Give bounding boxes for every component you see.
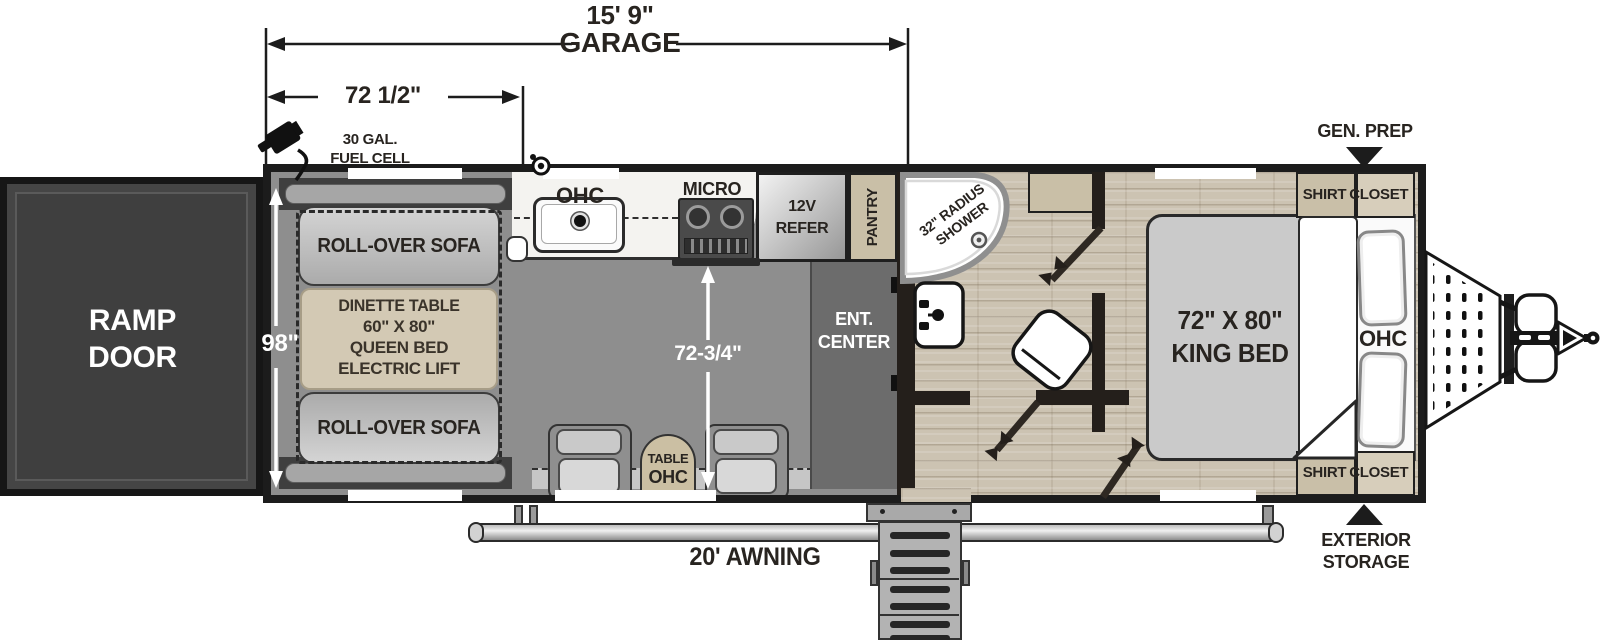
roll-over-sofa-bottom-label: ROLL-OVER SOFA	[306, 418, 492, 440]
bath-bedroom-wall-upper	[1092, 172, 1105, 229]
garage-length-value: 15' 9"	[540, 1, 700, 29]
rock-guard-vents	[1433, 263, 1493, 417]
hitch-triangle	[1558, 322, 1586, 354]
shirt-closet-top-word2: CLOSET	[1349, 186, 1408, 203]
exterior-storage-line2: STORAGE	[1316, 551, 1416, 573]
rock-guard	[1426, 252, 1500, 428]
shirt-closet-top-word1: SHIRT	[1303, 186, 1347, 203]
awning-label: 20' AWNING	[666, 544, 845, 571]
king-bed-label-line1: 72" X 80"	[1155, 304, 1305, 337]
shirt-closet-bottom-word2: CLOSET	[1349, 464, 1408, 481]
roll-over-sofa-top-label: ROLL-OVER SOFA	[306, 236, 492, 258]
king-bed-label-line2: KING BED	[1155, 337, 1305, 370]
propane-tank	[1516, 295, 1556, 335]
awning-cap-left	[468, 522, 484, 543]
table-ohc-label: OHC	[640, 468, 696, 487]
corridor-south-wall	[903, 391, 970, 405]
ramp-door-label-line2: DOOR	[20, 339, 245, 376]
refer-label: 12V REFER	[756, 196, 848, 240]
bath-south-wall	[1036, 390, 1129, 405]
fuel-cell-label: 30 GAL. FUEL CELL	[324, 130, 416, 168]
window-bedroom-bottom	[1160, 490, 1256, 501]
fuel-cell-line1: 30 GAL.	[324, 130, 416, 149]
front-hitch-assembly	[1426, 252, 1600, 428]
hitch-coupler-icon	[1587, 332, 1600, 345]
exterior-storage-line1: EXTERIOR	[1316, 529, 1416, 551]
garage-length-word: GARAGE	[535, 28, 705, 58]
body-width-value: 98"	[254, 331, 306, 357]
bedroom-ohc-label: OHC	[1352, 327, 1414, 351]
front-width-value: 72 1/2"	[318, 83, 448, 109]
micro-label: MICRO	[678, 180, 746, 199]
ramp-door-label: RAMP DOOR	[20, 302, 245, 376]
a-frame-bar	[1500, 345, 1568, 377]
dinette-label-line2: 60" X 80"	[300, 316, 498, 337]
ent-center-label: ENT. CENTER	[810, 308, 898, 354]
exterior-storage-label: EXTERIOR STORAGE	[1316, 529, 1416, 573]
shirt-closet-bottom-word1: SHIRT	[1303, 464, 1347, 481]
gen-prep-label: GEN. PREP	[1310, 122, 1420, 141]
propane-tank	[1516, 341, 1556, 381]
dinette-label-line3: QUEEN BED	[300, 337, 498, 358]
dinette-label-line1: DINETTE TABLE	[306, 295, 492, 316]
ent-center-label-line1: ENT.	[810, 308, 898, 331]
aisle-width-value: 72-3/4"	[668, 343, 748, 366]
rv-floorplan: RAMP DOOR ROLL-OVER SOFA DINETTE TABLE 6…	[0, 0, 1600, 640]
shirt-closet-top-label: SHIRTCLOSET	[1296, 187, 1415, 203]
tank-tray	[1510, 331, 1560, 345]
window-garage-bottom	[348, 490, 462, 501]
a-frame-bar	[1500, 302, 1568, 332]
ent-center-label-line2: CENTER	[810, 331, 898, 354]
refer-label-line1: 12V	[756, 196, 848, 218]
bath-bedroom-wall-lower	[1092, 293, 1105, 432]
awning-tube	[470, 523, 1284, 542]
window-kitchen-bottom	[555, 490, 716, 501]
refer-label-line2: REFER	[756, 218, 848, 240]
king-bed-label: 72" X 80" KING BED	[1150, 304, 1310, 370]
garage-bath-wall	[897, 172, 915, 495]
window-garage-top	[348, 168, 462, 179]
steps-side-tab-left	[870, 560, 878, 586]
entry-steps-platform	[866, 503, 972, 522]
entry-steps	[878, 521, 962, 640]
ramp-door-label-line1: RAMP	[20, 302, 245, 339]
dinette-label: DINETTE TABLE 60" X 80" QUEEN BED ELECTR…	[300, 295, 498, 379]
steps-side-tab-right	[962, 560, 970, 586]
window-kitchen-top	[543, 168, 619, 179]
entry-door-opening	[901, 488, 971, 502]
fuel-cell-line2: FUEL CELL	[324, 149, 416, 168]
exterior-storage-arrow-icon	[1346, 504, 1383, 525]
window-bedroom-top	[1155, 168, 1256, 179]
shirt-closet-bottom-label: SHIRTCLOSET	[1296, 465, 1415, 481]
table-label: TABLE	[640, 452, 696, 466]
awning-cap-right	[1268, 522, 1284, 543]
kitchen-ohc-label: OHC	[548, 184, 612, 208]
dinette-label-line4: ELECTRIC LIFT	[300, 358, 498, 379]
